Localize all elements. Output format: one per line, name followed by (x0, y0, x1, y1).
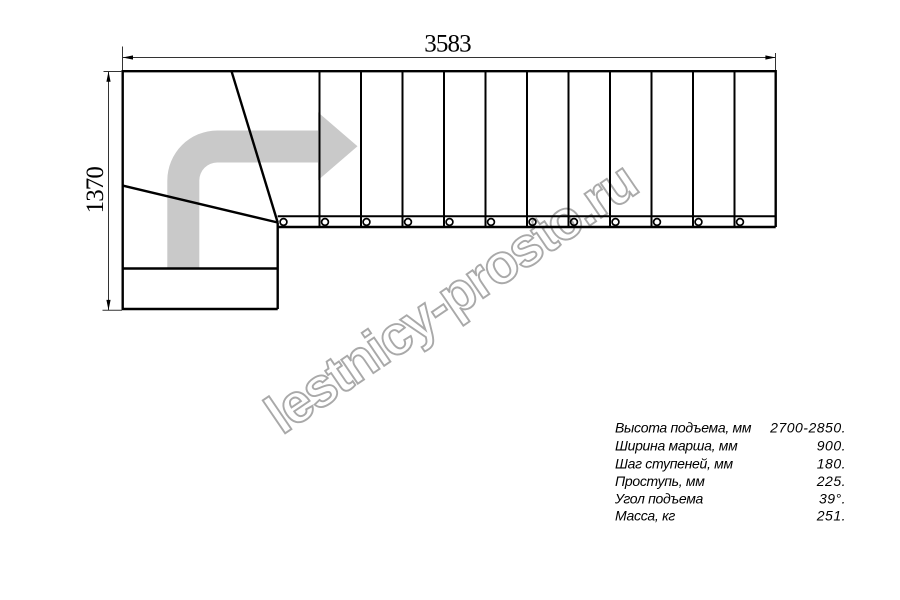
svg-text:1370: 1370 (82, 167, 109, 214)
svg-text:Проступь, мм: Проступь, мм (615, 473, 705, 489)
svg-text:Ширина марша, мм: Ширина марша, мм (615, 437, 738, 453)
svg-text:Шаг ступеней, мм: Шаг ступеней, мм (615, 455, 733, 471)
svg-text:180.: 180. (817, 455, 846, 471)
svg-text:900.: 900. (817, 437, 846, 453)
svg-text:Угол подъема: Угол подъема (614, 490, 704, 506)
svg-text:3583: 3583 (424, 30, 471, 57)
svg-text:251.: 251. (816, 508, 846, 524)
svg-text:39°.: 39°. (819, 490, 846, 506)
svg-text:2700-2850.: 2700-2850. (769, 420, 846, 436)
svg-text:Масса, кг: Масса, кг (615, 508, 675, 524)
svg-text:Высота подъема, мм: Высота подъема, мм (615, 420, 752, 436)
svg-text:225.: 225. (816, 473, 846, 489)
